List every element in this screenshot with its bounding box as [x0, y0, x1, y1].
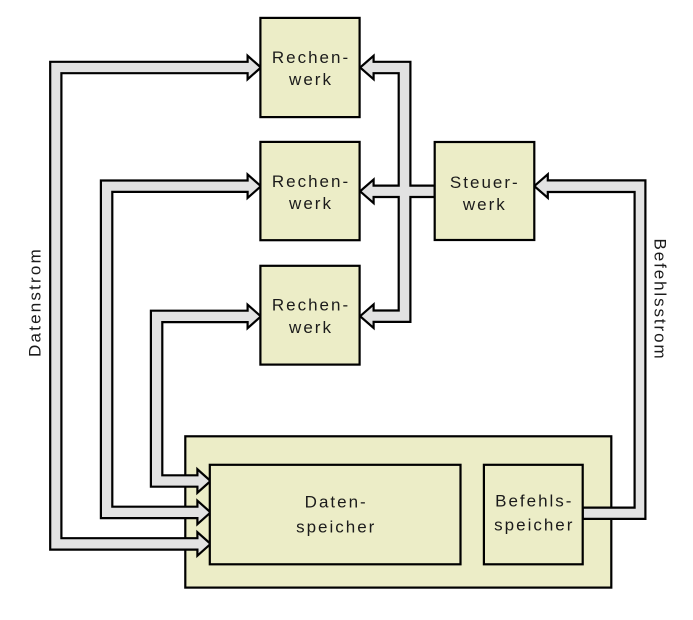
svg-text:Daten-: Daten- — [305, 492, 368, 511]
svg-text:Rechen-: Rechen- — [272, 172, 350, 191]
svg-text:Steuer-: Steuer- — [450, 173, 520, 192]
svg-text:werk: werk — [288, 318, 333, 337]
svg-text:speicher: speicher — [494, 516, 574, 535]
svg-text:Rechen-: Rechen- — [272, 296, 350, 315]
svg-text:Rechen-: Rechen- — [272, 48, 350, 67]
svg-text:werk: werk — [288, 194, 333, 213]
svg-text:Befehls-: Befehls- — [495, 492, 573, 511]
svg-text:Datenstrom: Datenstrom — [25, 247, 44, 357]
svg-text:Befehlsstrom: Befehlsstrom — [651, 238, 670, 360]
svg-text:werk: werk — [288, 70, 333, 89]
svg-text:speicher: speicher — [296, 518, 376, 537]
svg-text:werk: werk — [462, 195, 507, 214]
